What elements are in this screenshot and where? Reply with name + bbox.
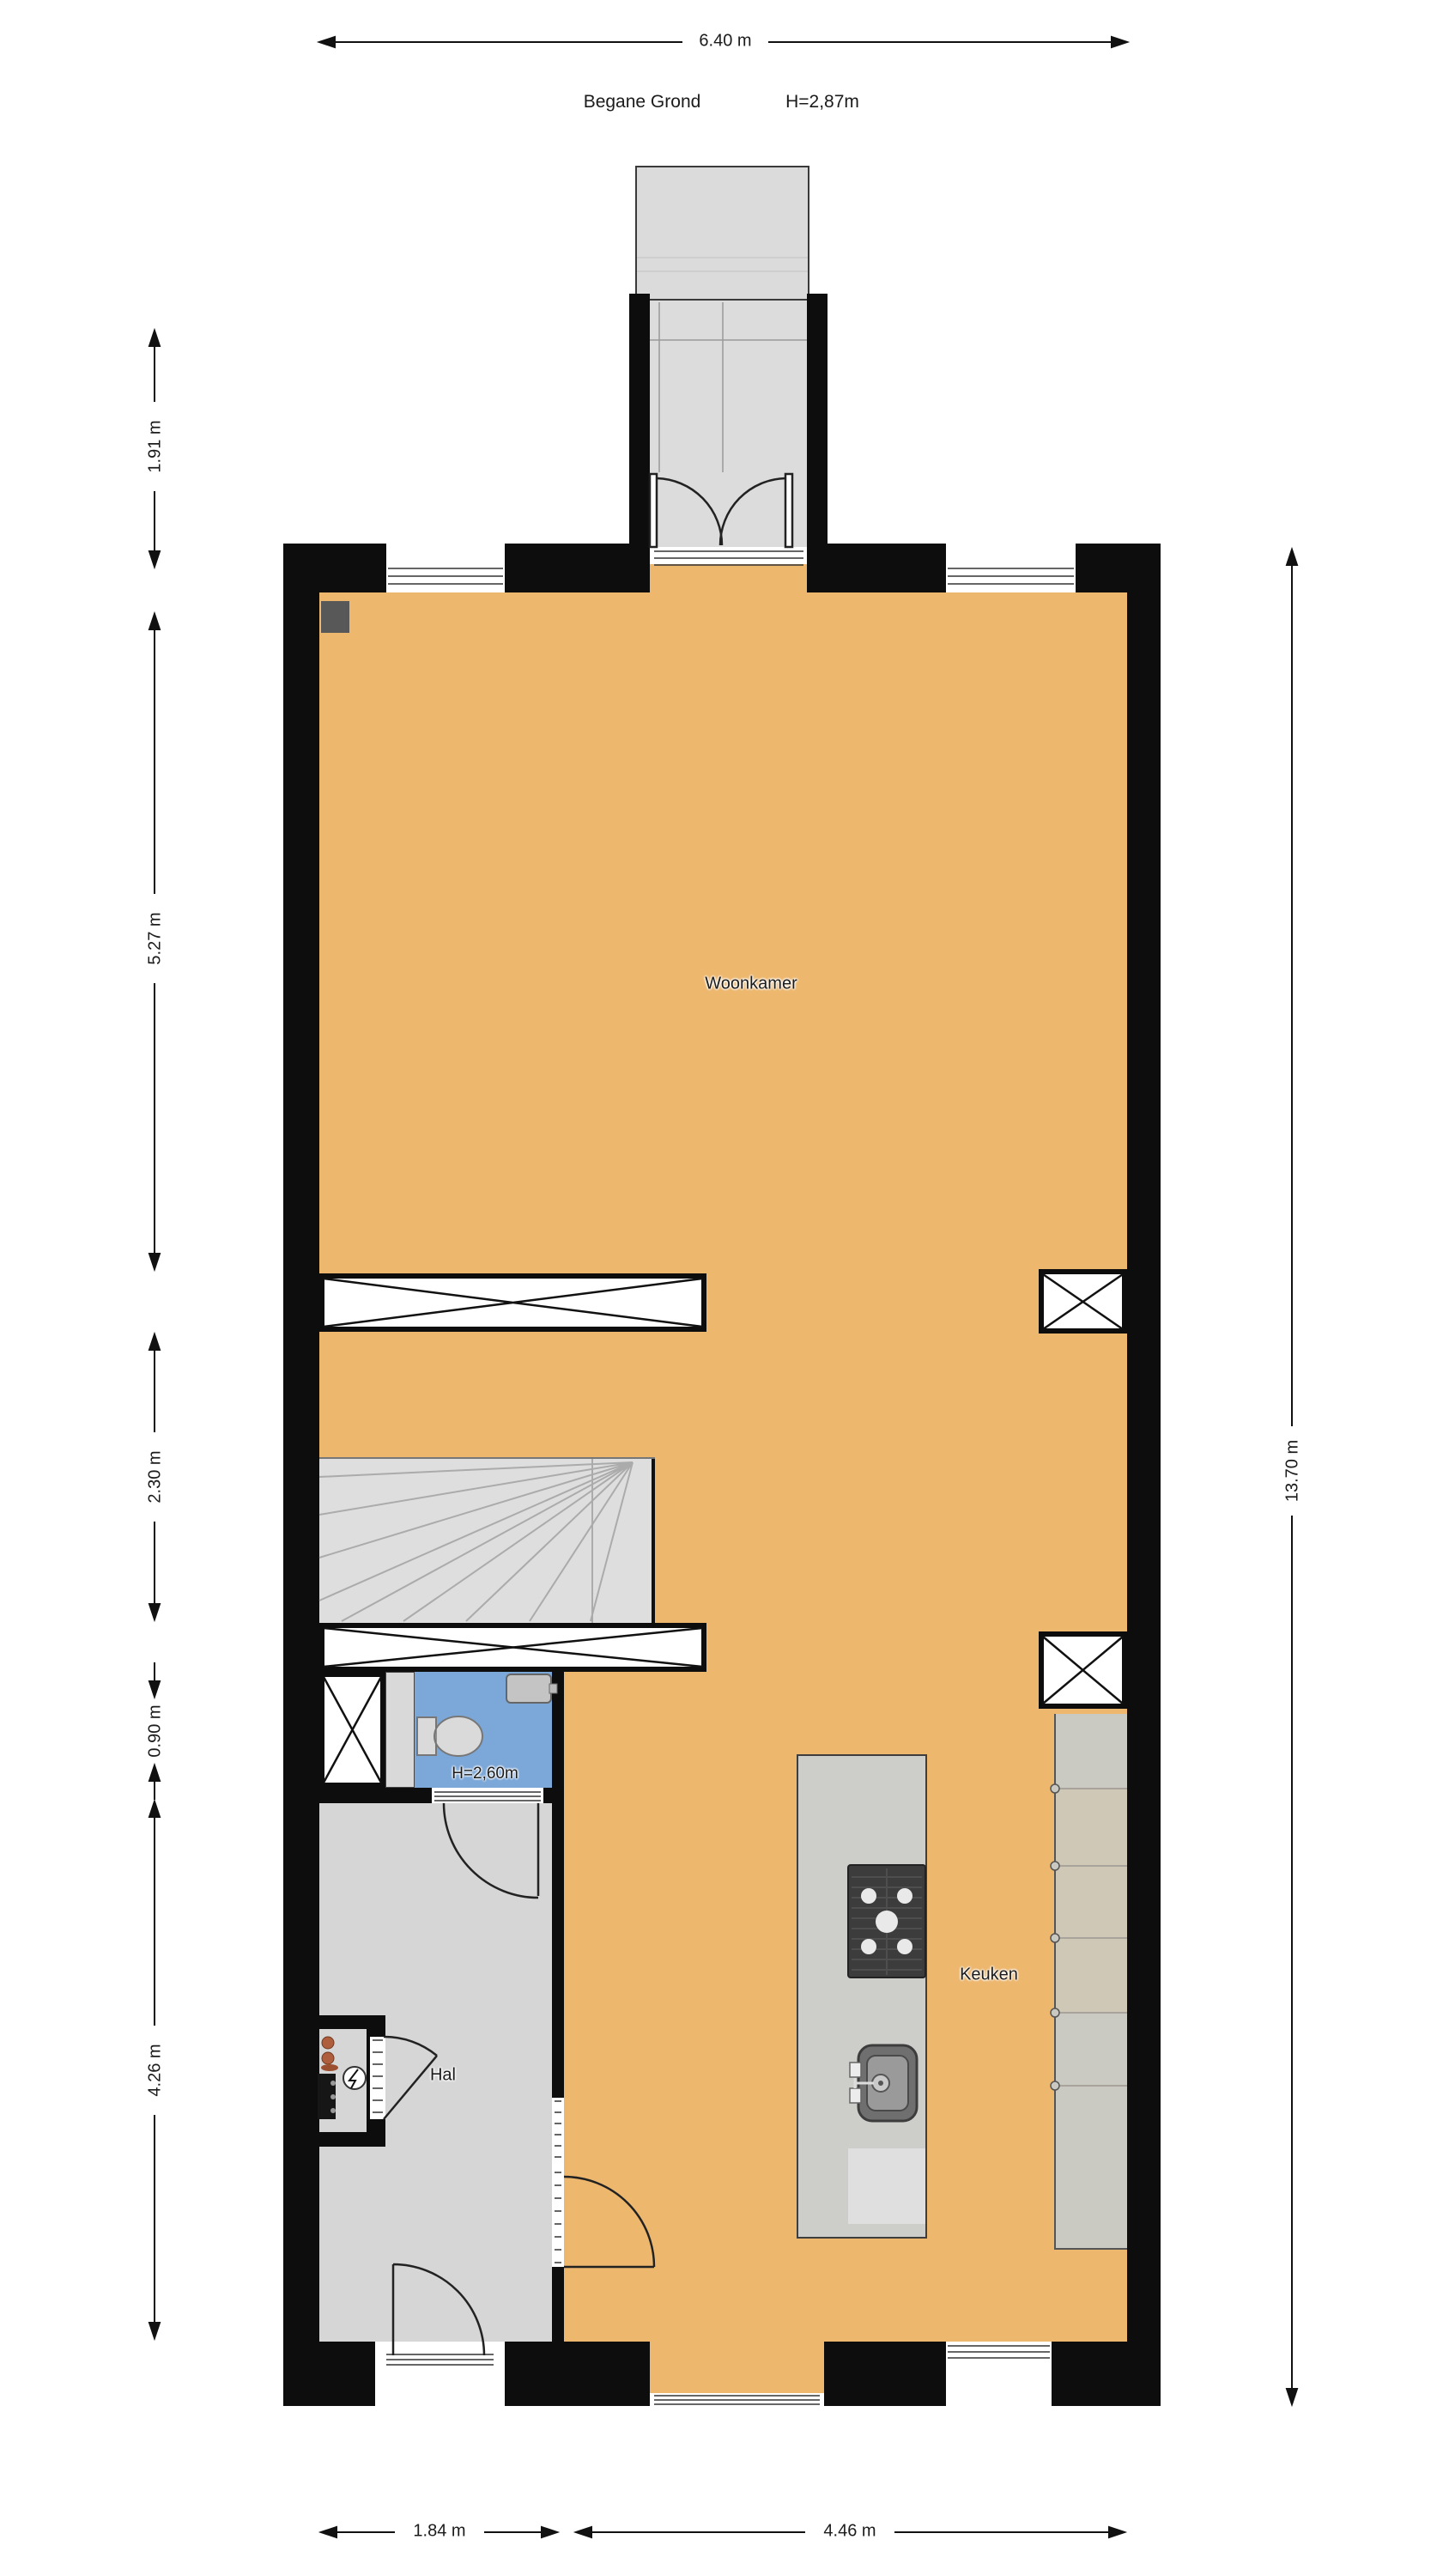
floorplan-page: Begane Grond H=2,87m Woonkamer Keuken Ha…	[0, 0, 1449, 2576]
dim-bottom-2: 4.46 m	[823, 2522, 876, 2542]
wall-top-3	[807, 544, 946, 592]
dim-left-5: 4.26 m	[146, 2044, 166, 2096]
meter-cabinet-door	[370, 2037, 385, 2119]
toilet-door	[432, 1788, 543, 1803]
room-label-kitchen: Keuken	[960, 1965, 1018, 1985]
wall-top-2	[505, 544, 650, 592]
dim-left-1: 1.91 m	[146, 420, 166, 472]
dim-right: 13.70 m	[1283, 1440, 1303, 1502]
dim-top: 6.40 m	[699, 32, 751, 52]
porch-jamb-left	[629, 294, 650, 545]
hall-kitchen-sidelight	[552, 2098, 564, 2168]
cupboard-band-upper	[319, 1273, 706, 1332]
dim-left-3: 2.30 m	[146, 1450, 166, 1503]
cupboard-right-lower	[1039, 1631, 1127, 1709]
toilet-height-label: H=2,60m	[452, 1765, 518, 1783]
stairs	[319, 1457, 655, 1623]
wall-left	[283, 544, 319, 2406]
floor-ceiling-height: H=2,87m	[785, 92, 859, 112]
shaft-box	[319, 1672, 385, 1788]
kitchen-bay-floor	[650, 2342, 824, 2393]
window-top-left	[386, 544, 505, 592]
dim-bottom-1: 1.84 m	[413, 2522, 465, 2542]
cupboard-band-lower	[319, 1623, 706, 1672]
room-label-living: Woonkamer	[705, 975, 797, 994]
cupboard-right-upper	[1039, 1269, 1127, 1334]
room-label-hall: Hal	[430, 2066, 456, 2086]
front-door-opening	[375, 2342, 505, 2406]
hall-kitchen-door-opening	[552, 2168, 564, 2267]
window-top-right	[946, 544, 1076, 592]
wall-right	[1127, 544, 1161, 2406]
meter-cabinet-wall-bottom	[319, 2132, 385, 2147]
dim-left-2: 5.27 m	[146, 912, 166, 964]
cutting-board	[848, 2148, 925, 2224]
duct-notch	[321, 601, 349, 633]
meter-cabinet-wall-top	[319, 2015, 385, 2029]
toilet-partition-strip	[385, 1672, 415, 1788]
meter-panel	[318, 2074, 336, 2119]
porch-floor	[650, 301, 807, 547]
window-bottom-right	[946, 2342, 1052, 2406]
dim-left-4: 0.90 m	[146, 1704, 166, 1757]
porch-jamb-right	[807, 294, 828, 545]
porch-canopy	[635, 166, 809, 301]
kitchen-counter-appliance-zone	[1056, 1789, 1127, 2013]
floor-title: Begane Grond	[584, 92, 701, 112]
window-bottom-center	[650, 2393, 824, 2406]
